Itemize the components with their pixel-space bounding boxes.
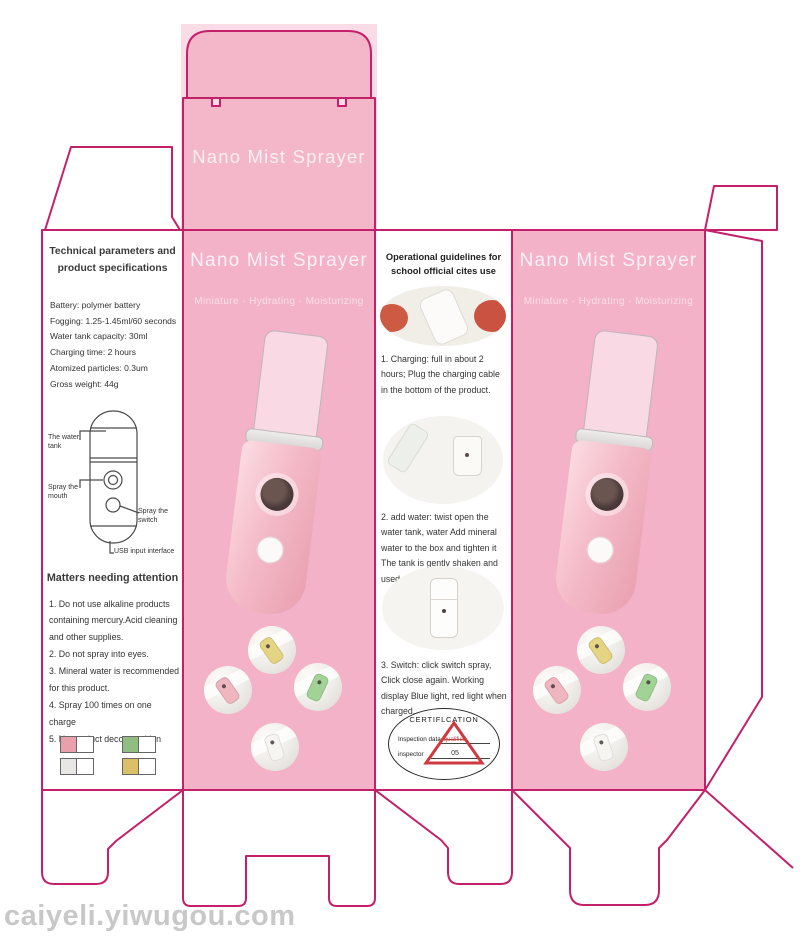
spec-item: Water tank capacity: 30ml (50, 329, 176, 345)
product-diagram: The water tank Spray the mouth Spray the… (42, 398, 183, 572)
photo-add-water (383, 416, 503, 504)
attention-header: Matters needing attention (42, 572, 183, 584)
qualified-triangle-icon (423, 721, 485, 765)
photo-bottle (386, 422, 430, 474)
spec-item: Charging time: 2 hours (50, 345, 176, 361)
attention-item: 4. Spray 100 times on one charge (49, 697, 180, 730)
sprayer-photo (551, 328, 665, 620)
top-flap-title: Nano Mist Sprayer (183, 146, 375, 168)
label-spray-mouth: Spray the mouth (48, 484, 88, 502)
spec-item: Battery: polymer battery (50, 298, 176, 314)
label-usb-interface: USB input interface (114, 548, 182, 557)
mini-sprayer (214, 675, 242, 706)
panel-side: Nano Mist Sprayer Miniature · Hydrating … (512, 230, 705, 790)
swatch-blank (77, 736, 94, 753)
guide-step-1: 1. Charging: full in about 2 hours; Plug… (381, 352, 509, 398)
panel-guide: Operational guidelines for school offici… (375, 230, 512, 790)
swatch-blank (139, 736, 156, 753)
attention-item: 1. Do not use alkaline products containi… (49, 596, 180, 645)
mini-sprayer (587, 635, 615, 666)
sticker-yellow-variant (248, 626, 296, 674)
swatch-blank (77, 758, 94, 775)
hand-blob (380, 304, 408, 332)
dust-flap-right (705, 186, 777, 230)
attention-item: 3. Mineral water is recommended for this… (49, 663, 180, 696)
photo-spray-switch (382, 566, 504, 650)
attention-list: 1. Do not use alkaline products containi… (49, 596, 180, 748)
sprayer-cap (582, 329, 658, 442)
front-title: Nano Mist Sprayer (183, 250, 375, 272)
dust-flap-left (45, 147, 180, 230)
packaging-dieline-sheet: Nano Mist Sprayer Technical parameters a… (0, 0, 800, 945)
photo-product-upright (430, 578, 458, 638)
glue-flap (705, 230, 762, 790)
panel-technical: Technical parameters and product specifi… (42, 230, 183, 790)
swatch-pair-yellow (122, 758, 164, 775)
sticker-pink-variant (533, 666, 581, 714)
side-subtitle: Miniature · Hydrating · Moisturizing (512, 296, 705, 307)
spec-item: Atomized particles: 0.3um (50, 361, 176, 377)
bottom-corner-cut-line (705, 790, 793, 868)
tuck-tab (187, 31, 371, 98)
inspector-number: 05 (433, 750, 477, 757)
mini-sprayer (543, 675, 571, 706)
label-spray-switch: Spray the switch (138, 508, 178, 526)
mini-sprayer (634, 672, 659, 703)
mini-sprayer (592, 732, 615, 762)
swatch-pair-green (122, 736, 164, 753)
front-subtitle: Miniature · Hydrating · Moisturizing (183, 296, 375, 307)
label-water-tank: The water tank (48, 434, 88, 452)
attention-item: 2. Do not spray into eyes. (49, 646, 180, 662)
photo-charging (380, 286, 506, 346)
certification-stamp: CERTIFLCATION Inspection data inspector … (388, 708, 500, 780)
sticker-pink-variant (204, 666, 252, 714)
spec-item: Gross weight: 44g (50, 377, 176, 393)
sticker-white-variant (251, 723, 299, 771)
bottom-flap-1 (42, 790, 183, 884)
photo-product (417, 287, 470, 346)
technical-header: Technical parameters and product specifi… (46, 244, 179, 278)
swatch-yellow (122, 758, 139, 775)
sprayer-body (222, 439, 322, 617)
color-swatch-grid (60, 736, 164, 775)
swatch-pair-pink (60, 736, 102, 753)
sprayer-nozzle (588, 476, 625, 513)
swatch-gray (60, 758, 77, 775)
sprayer-nozzle (259, 476, 296, 513)
inspector-label: inspector (398, 751, 424, 758)
mini-sprayer (258, 635, 286, 666)
bottom-flap-3 (375, 790, 512, 884)
spec-list: Battery: polymer battery Fogging: 1.25-1… (50, 298, 176, 392)
mini-sprayer (305, 672, 330, 703)
watermark: caiyeli.yiwugou.com (4, 900, 296, 933)
swatch-pair-gray (60, 758, 102, 775)
panel-front: Nano Mist Sprayer Miniature · Hydrating … (183, 230, 375, 790)
guide-header: Operational guidelines for school offici… (377, 250, 510, 279)
sticker-white-variant (580, 723, 628, 771)
bottom-flap-4 (512, 790, 705, 905)
swatch-green (122, 736, 139, 753)
sticker-yellow-variant (577, 626, 625, 674)
side-title: Nano Mist Sprayer (512, 250, 705, 272)
photo-tank (453, 436, 482, 476)
sprayer-button (255, 535, 285, 565)
sprayer-body (552, 439, 652, 617)
mini-sprayer (263, 732, 286, 762)
bottom-flap-2 (183, 790, 375, 906)
sticker-green-variant (623, 663, 671, 711)
swatch-pink (60, 736, 77, 753)
sprayer-cap (253, 329, 329, 442)
hand-blob (474, 300, 506, 332)
spec-item: Fogging: 1.25-1.45ml/60 seconds (50, 314, 176, 330)
swatch-blank (139, 758, 156, 775)
qualified-stamp-text: qualified (433, 737, 477, 743)
sprayer-button (585, 535, 615, 565)
sticker-green-variant (294, 663, 342, 711)
sprayer-photo (222, 328, 336, 620)
